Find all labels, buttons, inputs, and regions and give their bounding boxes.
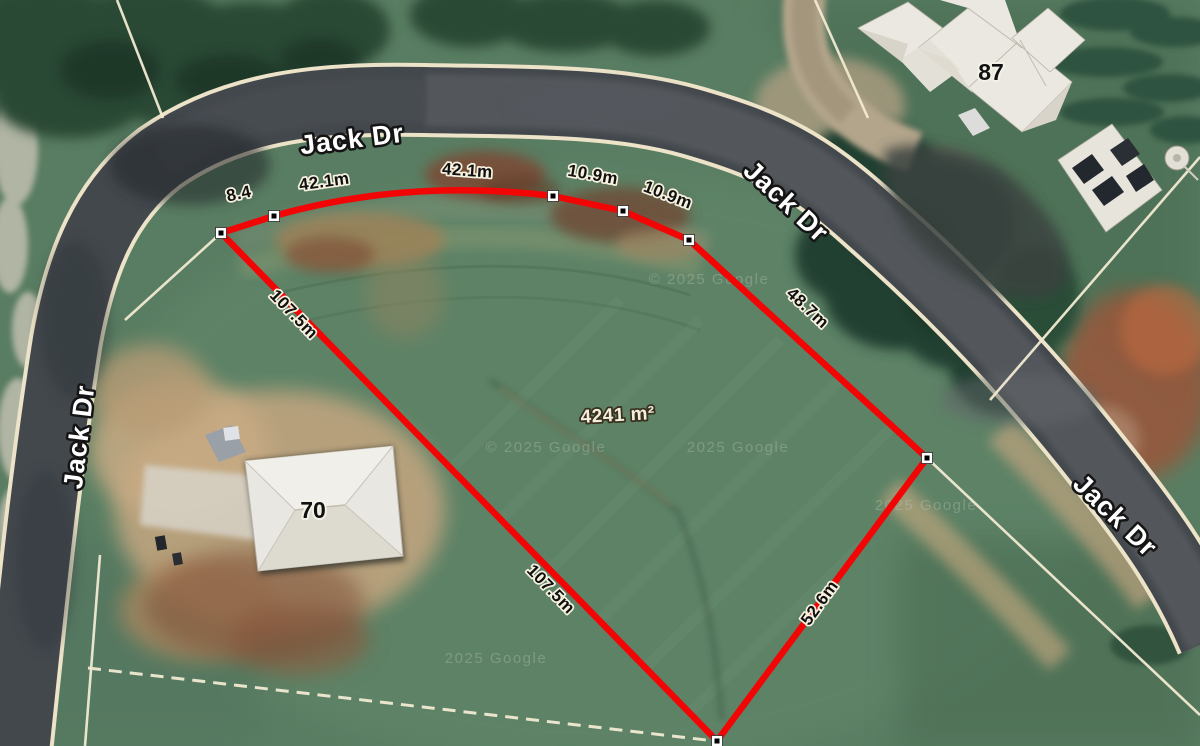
- vertex-marker: [712, 736, 723, 746]
- vertex-marker: [269, 211, 280, 222]
- vertex-marker: [618, 206, 629, 217]
- satellite-map-canvas[interactable]: © 2025 Google 2025 Google © 2025 Google …: [0, 0, 1200, 746]
- watermark: © 2025 Google: [649, 271, 770, 288]
- watermark: 2025 Google: [445, 650, 547, 667]
- vertex-marker: [548, 191, 559, 202]
- house-number-70: 70: [300, 497, 326, 523]
- vertex-marker: [216, 228, 227, 239]
- watermark: 2025 Google: [687, 439, 789, 456]
- house-number-87: 87: [978, 59, 1004, 85]
- vertex-marker: [684, 235, 695, 246]
- parcel-area-label: 4241 m²: [580, 403, 655, 428]
- watermark: © 2025 Google: [486, 439, 607, 456]
- measurement-label-42-1-b: 42.1m: [441, 159, 493, 181]
- satellite-map-viewport[interactable]: © 2025 Google 2025 Google © 2025 Google …: [0, 0, 1200, 746]
- vertex-marker: [922, 453, 933, 464]
